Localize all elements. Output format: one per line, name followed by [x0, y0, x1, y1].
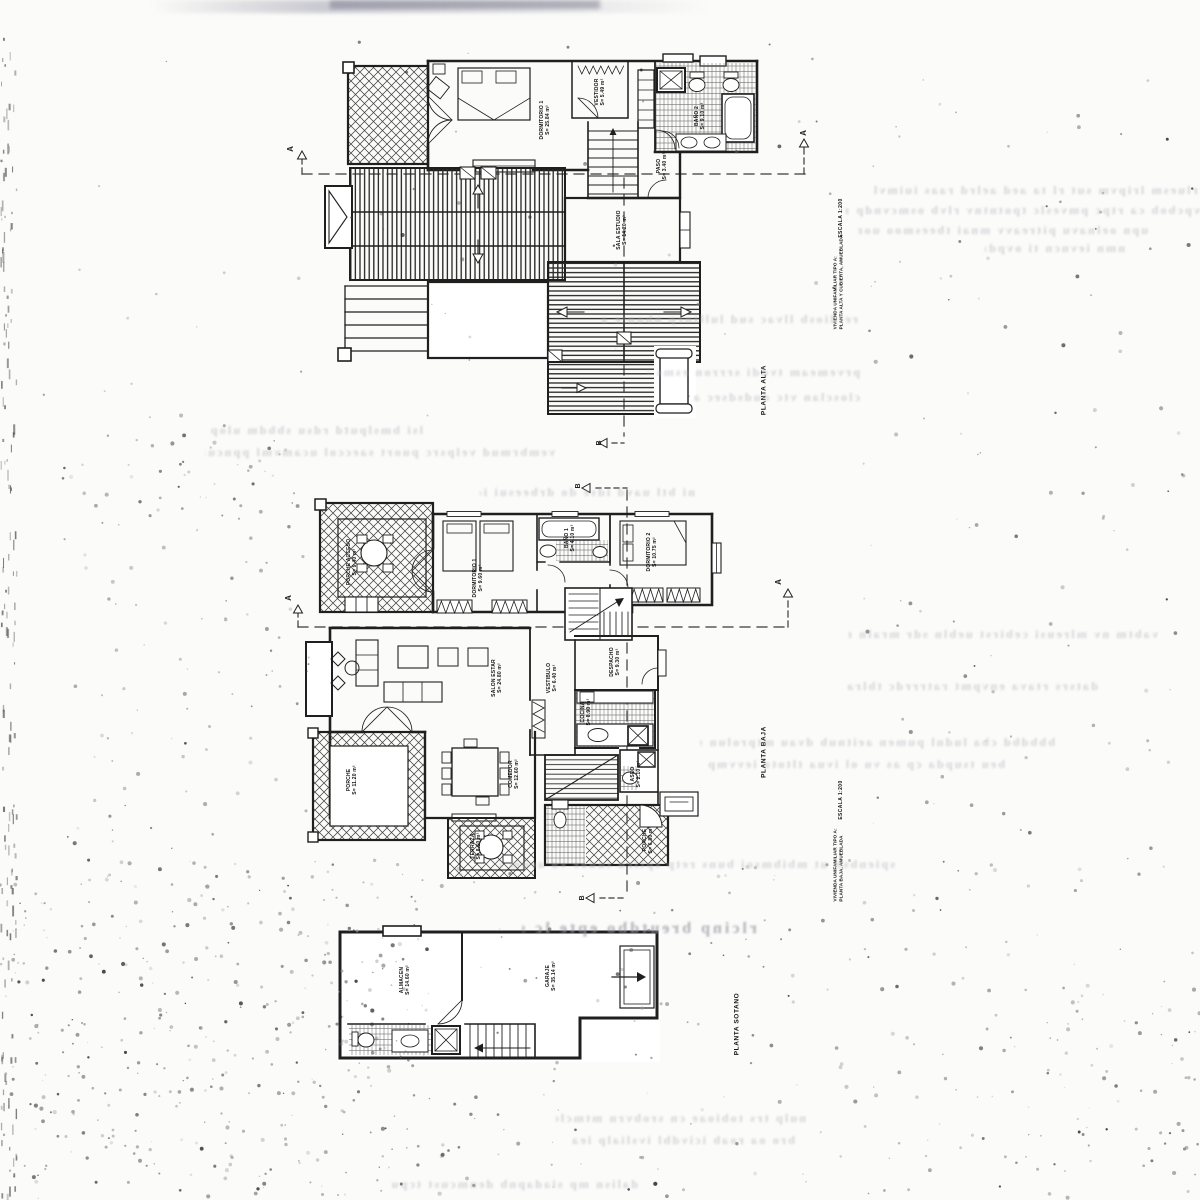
scanned-floorplan-page: A A B [0, 0, 1200, 1200]
scan-noise [0, 0, 1200, 1200]
